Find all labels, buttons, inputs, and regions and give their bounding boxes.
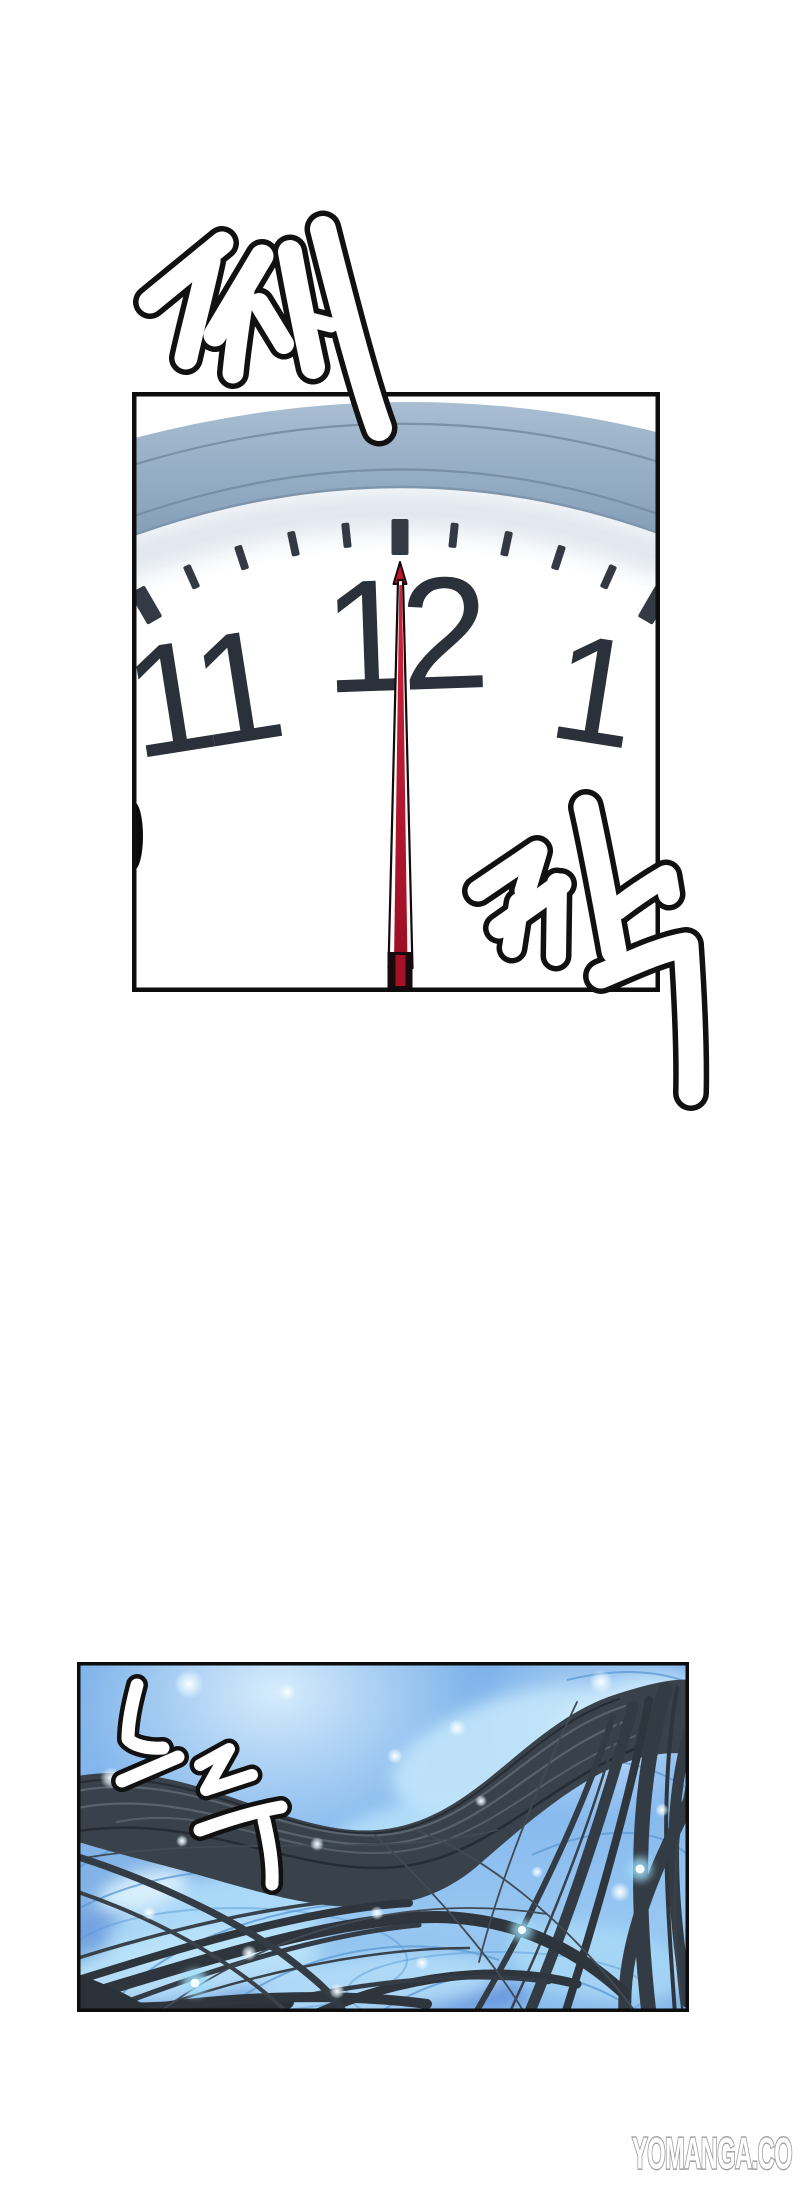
sfx-jjae: 째: [118, 208, 408, 466]
comic-page: 11 12 1 째: [0, 0, 800, 2189]
sfx-kkak-fill: [478, 807, 691, 1093]
watermark-text: YOMANGA.CO: [632, 2130, 792, 2178]
water-panel: 스륵: [77, 1662, 689, 2012]
sfx-kkak: 깍: [452, 782, 720, 1114]
watermark: YOMANGA.CO: [628, 2130, 800, 2182]
